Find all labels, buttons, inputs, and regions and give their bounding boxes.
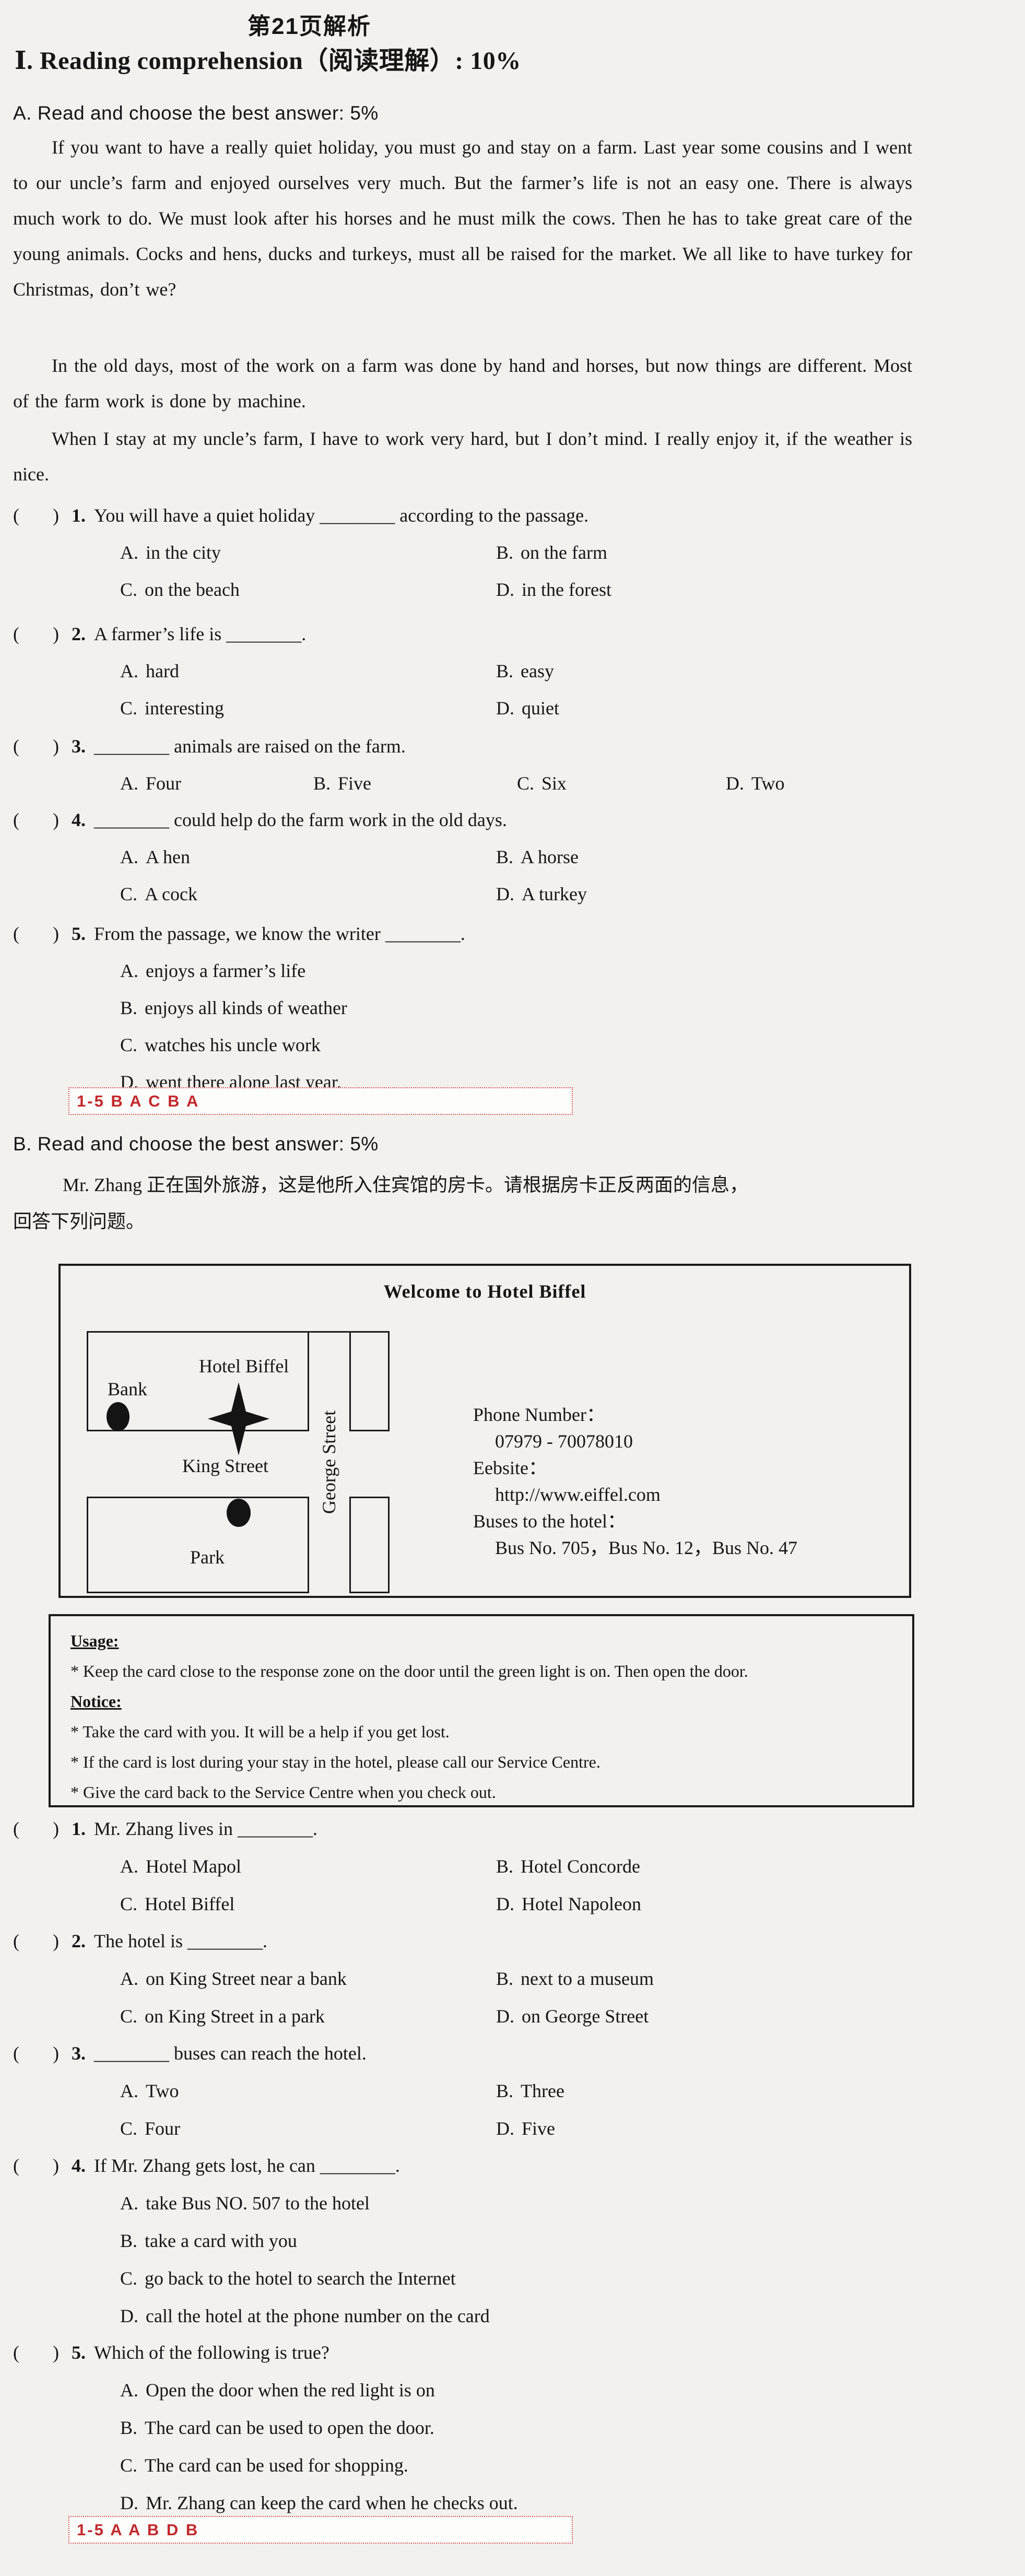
option-label: C. xyxy=(120,579,137,600)
option-label: C. xyxy=(120,1893,137,1914)
park-marker xyxy=(227,1499,251,1527)
section-heading: Ⅰ. Reading comprehension（阅读理解）: 10% xyxy=(15,40,521,76)
option-label: D. xyxy=(120,2492,138,2513)
option-item: C.on the beach xyxy=(120,579,240,608)
option-text: Four xyxy=(145,2118,180,2139)
answer-bracket-open: ( xyxy=(13,2043,19,2064)
option-label: D. xyxy=(496,884,514,904)
option-label: A. xyxy=(120,2380,138,2401)
option-text: next to a museum xyxy=(521,1968,654,1989)
answer-key-box-a: 1-5 B A C B A xyxy=(68,1087,573,1115)
option-label: C. xyxy=(120,2268,137,2289)
hotel-room-card: Welcome to Hotel Biffel Hotel Biffel Ban… xyxy=(58,1264,911,1598)
passage-paragraph: In the old days, most of the work on a f… xyxy=(13,348,912,419)
option-item: A.on King Street near a bank xyxy=(120,1968,347,1997)
question-text: You will have a quiet holiday ________ a… xyxy=(94,505,588,526)
option-label: B. xyxy=(496,2080,513,2101)
option-text: Four xyxy=(146,773,181,794)
contact-line: 07979 - 70078010 xyxy=(473,1428,797,1455)
answer-key-text-a: 1-5 B A C B A xyxy=(77,1092,199,1111)
option-label: A. xyxy=(120,1968,138,1989)
answer-bracket-open: ( xyxy=(13,624,19,644)
option-text: on King Street in a park xyxy=(145,2006,325,2027)
usage-title: Usage: xyxy=(70,1626,912,1656)
question-row: ()5.From the passage, we know the writer… xyxy=(13,923,465,955)
map-label-king-street: King Street xyxy=(182,1455,268,1477)
option-label: B. xyxy=(120,2417,137,2438)
option-text: A cock xyxy=(145,884,197,904)
hotel-contact-info: Phone Number：07979 - 70078010Eebsite：htt… xyxy=(473,1402,797,1561)
option-text: easy xyxy=(521,661,554,681)
answer-bracket-close: ) xyxy=(53,2155,59,2176)
notice-item: * Give the card back to the Service Cent… xyxy=(70,1777,912,1807)
answer-bracket-close: ) xyxy=(53,809,59,830)
part-b-heading: B. Read and choose the best answer: 5% xyxy=(13,1133,379,1155)
option-label: C. xyxy=(517,773,534,794)
hotel-star-icon xyxy=(208,1382,269,1455)
answer-bracket-close: ) xyxy=(53,1818,59,1839)
option-item: D.quiet xyxy=(496,697,559,726)
option-text: The card can be used for shopping. xyxy=(145,2455,408,2476)
contact-line: Bus No. 705，Bus No. 12，Bus No. 47 xyxy=(473,1535,797,1561)
option-label: A. xyxy=(120,2193,138,2214)
map-label-george-street: George Street xyxy=(309,1331,349,1593)
option-label: C. xyxy=(120,2118,137,2139)
answer-key-text-b: 1-5 A A B D B xyxy=(77,2521,199,2539)
answer-key-box-b: 1-5 A A B D B xyxy=(68,2516,573,2544)
option-label: A. xyxy=(120,2080,138,2101)
option-item: C.Six xyxy=(517,772,567,802)
question-row: ()3.________ buses can reach the hotel. xyxy=(13,2042,367,2075)
option-text: Five xyxy=(522,2118,555,2139)
option-item: A.Open the door when the red light is on xyxy=(120,2379,435,2408)
option-text: enjoys a farmer’s life xyxy=(146,960,305,981)
option-item: D.Hotel Napoleon xyxy=(496,1893,641,1922)
option-item: B.on the farm xyxy=(496,542,607,571)
option-label: B. xyxy=(496,542,513,563)
option-item: D.call the hotel at the phone number on … xyxy=(120,2305,490,2334)
option-text: quiet xyxy=(522,698,559,719)
option-item: D.Two xyxy=(726,772,784,802)
option-label: A. xyxy=(120,661,138,681)
option-text: Two xyxy=(751,773,784,794)
option-text: Hotel Concorde xyxy=(521,1856,640,1877)
question-row: ()4.If Mr. Zhang gets lost, he can _____… xyxy=(13,2155,400,2187)
question-row: ()2.A farmer’s life is ________. xyxy=(13,623,306,655)
option-text: hard xyxy=(146,661,179,681)
question-text: Mr. Zhang lives in ________. xyxy=(94,1818,317,1839)
option-text: The card can be used to open the door. xyxy=(145,2417,434,2438)
map-label-bank: Bank xyxy=(108,1378,147,1400)
option-text: interesting xyxy=(145,698,224,719)
option-text: Six xyxy=(541,773,567,794)
answer-bracket-close: ) xyxy=(53,1931,59,1951)
answer-bracket-close: ) xyxy=(53,2043,59,2064)
option-text: on the beach xyxy=(145,579,240,600)
option-label: C. xyxy=(120,884,137,904)
option-item: D.Five xyxy=(496,2118,555,2147)
option-label: B. xyxy=(120,2230,137,2251)
question-text: ________ animals are raised on the farm. xyxy=(94,736,406,757)
option-label: B. xyxy=(496,1968,513,1989)
hotel-map: Hotel Biffel Bank King Street Park Georg… xyxy=(87,1331,390,1593)
option-text: on the farm xyxy=(521,542,607,563)
option-item: A.in the city xyxy=(120,542,221,571)
passage-paragraph: If you want to have a really quiet holid… xyxy=(13,130,912,307)
answer-bracket-open: ( xyxy=(13,505,19,526)
option-label: D. xyxy=(496,2118,514,2139)
page-title: 第21页解析 xyxy=(248,7,371,41)
notice-item: * If the card is lost during your stay i… xyxy=(70,1747,912,1777)
contact-line: Buses to the hotel： xyxy=(473,1508,797,1535)
question-number: 4. xyxy=(72,2155,86,2176)
question-text: ________ buses can reach the hotel. xyxy=(94,2043,367,2064)
question-number: 2. xyxy=(72,624,86,644)
option-item: B.enjoys all kinds of weather xyxy=(120,997,347,1026)
question-number: 3. xyxy=(72,2043,86,2064)
option-text: on George Street xyxy=(522,2006,649,2027)
option-text: Three xyxy=(521,2080,564,2101)
option-text: on King Street near a bank xyxy=(146,1968,347,1989)
part-b-intro-line: Mr. Zhang 正在国外旅游，这是他所入住宾馆的房卡。请根据房卡正反两面的信… xyxy=(63,1170,748,1197)
option-item: C.A cock xyxy=(120,883,197,912)
option-text: in the city xyxy=(146,542,221,563)
answer-bracket-open: ( xyxy=(13,736,19,757)
option-item: D.A turkey xyxy=(496,883,587,912)
option-item: A.take Bus NO. 507 to the hotel xyxy=(120,2192,370,2221)
hotel-card-title: Welcome to Hotel Biffel xyxy=(61,1280,909,1302)
question-number: 3. xyxy=(72,736,86,757)
answer-bracket-open: ( xyxy=(13,809,19,830)
contact-line: Phone Number： xyxy=(473,1402,797,1428)
option-label: B. xyxy=(313,773,331,794)
option-label: D. xyxy=(120,2306,138,2326)
question-text: Which of the following is true? xyxy=(94,2342,329,2363)
option-text: take Bus NO. 507 to the hotel xyxy=(146,2193,370,2214)
option-item: C.The card can be used for shopping. xyxy=(120,2454,408,2484)
answer-bracket-open: ( xyxy=(13,1931,19,1951)
map-block-east-top xyxy=(349,1331,390,1431)
question-row: ()2.The hotel is ________. xyxy=(13,1930,267,1962)
part-b-intro-line: 回答下列问题。 xyxy=(13,1206,145,1233)
question-text: A farmer’s life is ________. xyxy=(94,624,306,644)
option-item: C.Four xyxy=(120,2118,180,2147)
notice-title: Notice: xyxy=(70,1686,912,1716)
option-text: watches his uncle work xyxy=(145,1034,321,1055)
option-text: Two xyxy=(146,2080,179,2101)
option-label: C. xyxy=(120,1034,137,1055)
map-block-park xyxy=(87,1497,309,1593)
usage-item: * Keep the card close to the response zo… xyxy=(70,1656,912,1686)
question-text: From the passage, we know the writer ___… xyxy=(94,923,465,944)
option-item: B.next to a museum xyxy=(496,1968,654,1997)
answer-bracket-open: ( xyxy=(13,2155,19,2176)
contact-line: Eebsite： xyxy=(473,1455,797,1481)
option-label: B. xyxy=(496,846,513,867)
answer-bracket-close: ) xyxy=(53,505,59,526)
option-item: A.hard xyxy=(120,660,179,689)
option-item: C.interesting xyxy=(120,697,224,726)
option-label: A. xyxy=(120,542,138,563)
option-text: take a card with you xyxy=(145,2230,297,2251)
option-label: D. xyxy=(496,579,514,600)
option-item: A.enjoys a farmer’s life xyxy=(120,960,305,989)
question-row: ()1.Mr. Zhang lives in ________. xyxy=(13,1818,317,1850)
option-label: B. xyxy=(496,1856,513,1877)
bank-marker xyxy=(107,1402,129,1431)
option-item: C.Hotel Biffel xyxy=(120,1893,234,1922)
question-text: The hotel is ________. xyxy=(94,1931,267,1951)
option-text: Hotel Mapol xyxy=(146,1856,241,1877)
option-text: A turkey xyxy=(522,884,587,904)
question-number: 5. xyxy=(72,923,86,944)
option-item: C.on King Street in a park xyxy=(120,2005,325,2034)
map-label-park: Park xyxy=(190,1546,225,1568)
option-text: Hotel Napoleon xyxy=(522,1893,641,1914)
option-item: B.Five xyxy=(313,772,371,802)
option-label: A. xyxy=(120,960,138,981)
option-item: B.The card can be used to open the door. xyxy=(120,2417,434,2446)
option-label: C. xyxy=(120,698,137,719)
option-label: D. xyxy=(726,773,744,794)
question-number: 1. xyxy=(72,505,86,526)
answer-bracket-close: ) xyxy=(53,624,59,644)
option-item: B.easy xyxy=(496,660,554,689)
answer-bracket-open: ( xyxy=(13,2342,19,2363)
option-text: go back to the hotel to search the Inter… xyxy=(145,2268,456,2289)
question-row: ()5.Which of the following is true? xyxy=(13,2342,329,2374)
question-row: ()1.You will have a quiet holiday ______… xyxy=(13,504,588,537)
option-text: Five xyxy=(338,773,371,794)
contact-line: http://www.eiffel.com xyxy=(473,1481,797,1508)
option-text: A hen xyxy=(146,846,190,867)
card-usage-notice-box: Usage:* Keep the card close to the respo… xyxy=(49,1614,914,1807)
option-item: B.Hotel Concorde xyxy=(496,1855,640,1885)
option-item: D.in the forest xyxy=(496,579,611,608)
option-text: Mr. Zhang can keep the card when he chec… xyxy=(146,2492,518,2513)
answer-bracket-close: ) xyxy=(53,923,59,944)
question-number: 4. xyxy=(72,809,86,830)
question-row: ()3.________ animals are raised on the f… xyxy=(13,735,406,768)
option-text: Open the door when the red light is on xyxy=(146,2380,435,2401)
answer-bracket-open: ( xyxy=(13,923,19,944)
question-number: 2. xyxy=(72,1931,86,1951)
option-item: A.Two xyxy=(120,2080,179,2109)
map-block-east-bottom xyxy=(349,1497,390,1593)
question-number: 1. xyxy=(72,1818,86,1839)
answer-bracket-open: ( xyxy=(13,1818,19,1839)
option-label: A. xyxy=(120,773,138,794)
option-item: C.go back to the hotel to search the Int… xyxy=(120,2267,456,2297)
question-text: If Mr. Zhang gets lost, he can ________. xyxy=(94,2155,400,2176)
option-label: D. xyxy=(496,1893,514,1914)
option-text: enjoys all kinds of weather xyxy=(145,997,347,1018)
option-label: A. xyxy=(120,1856,138,1877)
option-item: D.on George Street xyxy=(496,2005,649,2034)
option-label: B. xyxy=(120,997,137,1018)
notice-item: * Take the card with you. It will be a h… xyxy=(70,1716,912,1747)
option-item: B.Three xyxy=(496,2080,564,2109)
option-label: D. xyxy=(496,2006,514,2027)
option-text: A horse xyxy=(521,846,579,867)
option-label: D. xyxy=(496,698,514,719)
option-text: call the hotel at the phone number on th… xyxy=(146,2306,490,2326)
option-item: A.A hen xyxy=(120,846,190,875)
answer-bracket-close: ) xyxy=(53,2342,59,2363)
question-number: 5. xyxy=(72,2342,86,2363)
option-label: C. xyxy=(120,2455,137,2476)
option-text: in the forest xyxy=(522,579,611,600)
option-label: A. xyxy=(120,846,138,867)
option-label: B. xyxy=(496,661,513,681)
option-item: B.A horse xyxy=(496,846,579,875)
option-item: C.watches his uncle work xyxy=(120,1034,321,1063)
question-row: ()4.________ could help do the farm work… xyxy=(13,809,507,841)
passage-paragraph: When I stay at my uncle’s farm, I have t… xyxy=(13,421,912,492)
answer-bracket-close: ) xyxy=(53,736,59,757)
option-label: C. xyxy=(120,2006,137,2027)
map-label-hotel: Hotel Biffel xyxy=(199,1355,289,1377)
option-text: Hotel Biffel xyxy=(145,1893,234,1914)
question-text: ________ could help do the farm work in … xyxy=(94,809,507,830)
part-a-heading: A. Read and choose the best answer: 5% xyxy=(13,102,379,124)
option-item: B.take a card with you xyxy=(120,2230,297,2259)
option-item: A.Four xyxy=(120,772,181,802)
option-item: A.Hotel Mapol xyxy=(120,1855,241,1885)
